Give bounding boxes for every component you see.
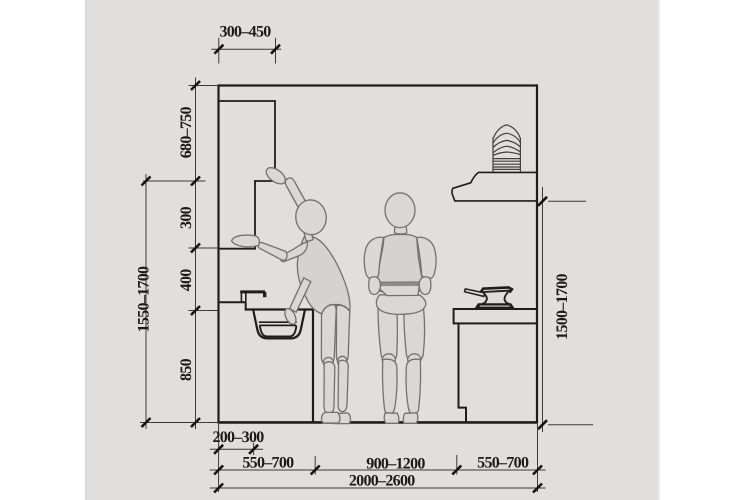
svg-text:1500–1700: 1500–1700 bbox=[554, 273, 571, 339]
svg-text:850: 850 bbox=[178, 358, 195, 381]
svg-text:550–700: 550–700 bbox=[242, 454, 294, 471]
svg-text:200–300: 200–300 bbox=[212, 429, 264, 446]
svg-text:550–700: 550–700 bbox=[477, 454, 529, 471]
svg-text:400: 400 bbox=[178, 269, 195, 292]
svg-text:300–450: 300–450 bbox=[219, 24, 271, 41]
svg-text:680–750: 680–750 bbox=[178, 106, 195, 158]
svg-text:1550–1700: 1550–1700 bbox=[136, 266, 153, 332]
svg-text:900–1200: 900–1200 bbox=[366, 455, 425, 472]
svg-text:300: 300 bbox=[178, 206, 195, 229]
svg-text:2000–2600: 2000–2600 bbox=[349, 473, 415, 490]
